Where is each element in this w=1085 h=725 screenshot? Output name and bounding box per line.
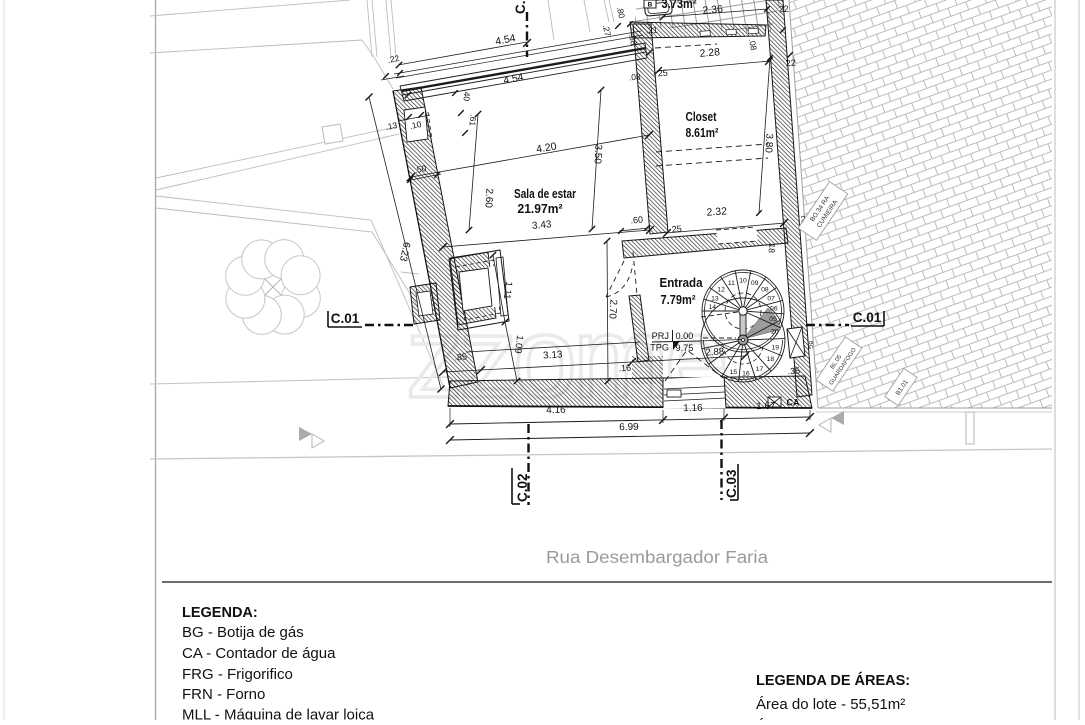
svg-text:LEGENDA:: LEGENDA: [182, 605, 258, 621]
svg-text:05: 05 [769, 316, 777, 323]
svg-text:.08: .08 [628, 71, 641, 82]
svg-text:3.43: 3.43 [532, 219, 553, 232]
svg-text:.85: .85 [454, 351, 467, 362]
svg-text:22: 22 [778, 4, 789, 15]
svg-text:BG - Botija de gás: BG - Botija de gás [182, 624, 304, 641]
svg-text:11: 11 [728, 280, 735, 287]
svg-text:16: 16 [742, 370, 750, 377]
svg-text:Closet: Closet [686, 109, 718, 124]
svg-text:2.32: 2.32 [706, 205, 727, 218]
svg-text:12: 12 [717, 287, 725, 294]
svg-text:18: 18 [767, 356, 775, 363]
svg-text:08: 08 [761, 287, 769, 294]
svg-text:3.13: 3.13 [543, 349, 564, 361]
svg-text:21.97m²: 21.97m² [518, 201, 563, 216]
svg-text:2.88: 2.88 [705, 346, 725, 358]
svg-text:6.99: 6.99 [619, 422, 639, 433]
svg-text:3.80: 3.80 [762, 133, 774, 153]
svg-text:.60: .60 [630, 214, 643, 225]
svg-text:06: 06 [770, 305, 778, 312]
svg-text:C.02: C.02 [515, 473, 530, 502]
svg-text:14: 14 [709, 304, 717, 311]
svg-text:7.79m²: 7.79m² [661, 292, 696, 307]
svg-text:3.73m²: 3.73m² [662, 0, 697, 11]
svg-text:9.75: 9.75 [676, 343, 694, 353]
svg-text:.35: .35 [787, 366, 800, 377]
svg-text:2.60: 2.60 [482, 188, 494, 208]
svg-text:FRG - Frigorifico: FRG - Frigorifico [182, 666, 293, 683]
svg-text:BG: BG [807, 341, 813, 349]
svg-text:C.02: C.02 [513, 0, 528, 14]
svg-text:22: 22 [785, 58, 796, 69]
svg-text:.21: .21 [645, 24, 658, 35]
svg-text:CA: CA [787, 398, 800, 408]
svg-text:C.01: C.01 [853, 310, 882, 325]
svg-text:B: B [648, 2, 653, 9]
svg-text:1.16: 1.16 [683, 403, 703, 414]
svg-text:13: 13 [711, 295, 719, 302]
svg-text:Sala de estar: Sala de estar [514, 186, 576, 201]
svg-text:PRJ: PRJ [652, 331, 669, 341]
svg-text:1.67: 1.67 [756, 401, 776, 412]
svg-text:.16: .16 [618, 363, 631, 374]
svg-text:2.28: 2.28 [699, 46, 721, 60]
svg-text:19: 19 [771, 344, 779, 351]
svg-text:CA - Contador de água: CA - Contador de água [182, 645, 336, 662]
svg-text:FRN - Forno: FRN - Forno [182, 686, 265, 703]
svg-text:3.50: 3.50 [591, 144, 603, 164]
svg-text:Rua Desembargador Faria: Rua Desembargador Faria [546, 547, 768, 567]
svg-text:C.01: C.01 [331, 311, 360, 326]
svg-text:18: 18 [767, 243, 778, 254]
svg-text:4.16: 4.16 [546, 405, 566, 416]
svg-text:2.70: 2.70 [606, 299, 618, 320]
svg-text:TPG: TPG [650, 343, 669, 353]
svg-text:10: 10 [739, 278, 747, 285]
svg-text:MLL - Máquina de lavar loiça: MLL - Máquina de lavar loiça [182, 707, 375, 721]
svg-text:1.11: 1.11 [501, 281, 514, 300]
svg-text:20: 20 [771, 328, 779, 335]
svg-text:2.36: 2.36 [702, 3, 724, 17]
svg-text:07: 07 [767, 295, 775, 302]
svg-text:09: 09 [751, 280, 759, 287]
svg-text:Entrada: Entrada [660, 275, 704, 290]
svg-text:LEGENDA DE ÁREAS:: LEGENDA DE ÁREAS: [756, 672, 910, 689]
svg-text:1.09: 1.09 [512, 334, 525, 354]
svg-text:C.03: C.03 [724, 469, 739, 498]
svg-text:15: 15 [730, 369, 738, 376]
svg-text:.40: .40 [461, 89, 472, 102]
svg-text:Área do lote - 55,51m²: Área do lote - 55,51m² [756, 696, 905, 713]
svg-text:0.00: 0.00 [676, 331, 694, 341]
svg-text:8.61m²: 8.61m² [686, 125, 719, 140]
svg-text:.08: .08 [747, 38, 759, 52]
svg-text:25: 25 [657, 68, 668, 79]
svg-text:17: 17 [756, 366, 764, 373]
